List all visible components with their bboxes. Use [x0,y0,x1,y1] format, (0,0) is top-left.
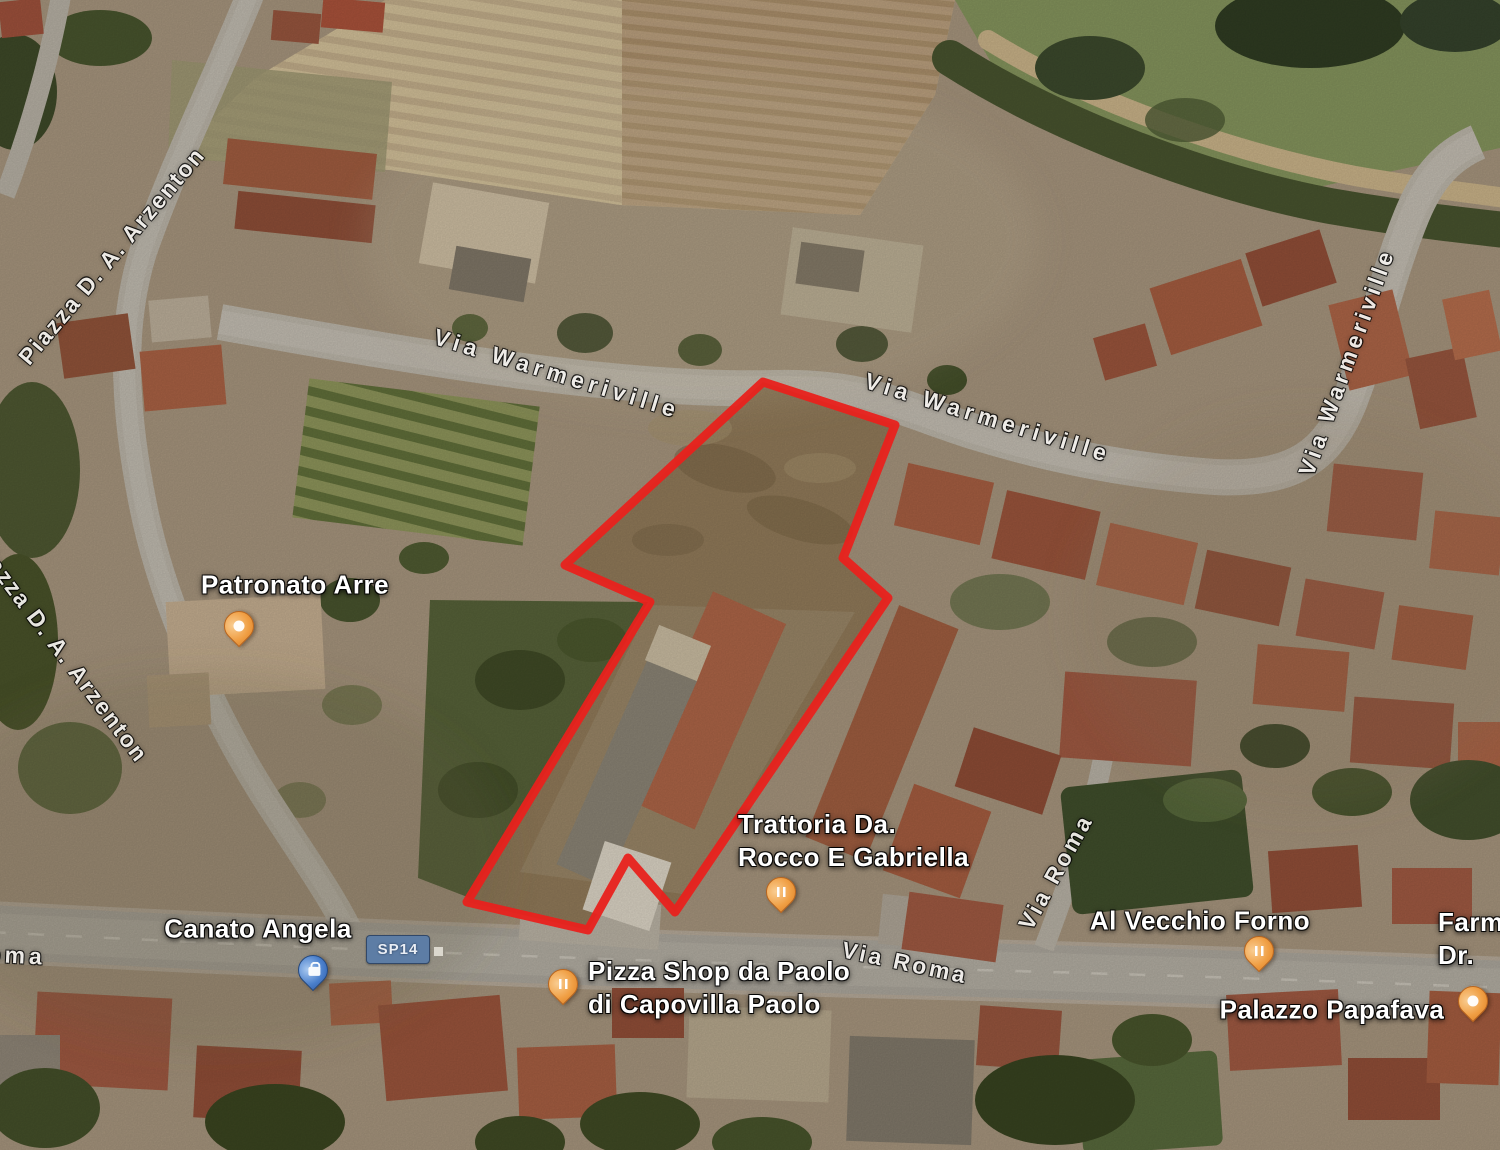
poi-label-line: Canato Angela [164,912,352,945]
poi-label-line: Palazzo Papafava [1220,993,1445,1026]
restaurant-icon [556,977,570,991]
poi-label-pizza-shop-capovilla[interactable]: Pizza Shop da Paolodi Capovilla Paolo [588,955,850,1022]
landmark-icon [234,621,245,632]
road-shield-marker [434,947,443,956]
poi-label-line: Pizza Shop da Paolo [588,955,850,988]
pin-body [760,871,802,913]
road-shield-sp14: SP14 [366,935,430,964]
poi-label-al-vecchio-forno[interactable]: Al Vecchio Forno [1090,904,1310,937]
poi-label-patronato-arre[interactable]: Patronato Arre [201,568,389,601]
poi-label-line: Patronato Arre [201,568,389,601]
satellite-map-viewport[interactable]: Via WarmerivilleVia WarmerivilleVia Warm… [0,0,1500,1150]
poi-label-trattoria-rocco-gabriella[interactable]: Trattoria Da.Rocco E Gabriella [738,808,969,875]
poi-label-line: Trattoria Da. [738,808,969,841]
shopping-icon [308,967,320,976]
poi-label-palazzo-papafava[interactable]: Palazzo Papafava [1220,993,1445,1026]
poi-label-line: Rocco E Gabriella [738,841,969,874]
poi-label-line: Farmacia [1438,906,1500,939]
street-label: Roma [0,940,47,971]
poi-label-line: di Capovilla Paolo [588,988,850,1021]
restaurant-icon [1252,944,1266,958]
poi-label-line: Dr. [1438,939,1500,972]
poi-label-canato-angela[interactable]: Canato Angela [164,912,352,945]
pin-body [292,949,334,991]
pin-body [1452,980,1494,1022]
pin-body [218,605,260,647]
pin-body [542,963,584,1005]
poi-label-farmacia-dr[interactable]: FarmaciaDr. [1438,906,1500,973]
poi-label-line: Al Vecchio Forno [1090,904,1310,937]
landmark-icon [1468,996,1479,1007]
restaurant-icon [774,885,788,899]
